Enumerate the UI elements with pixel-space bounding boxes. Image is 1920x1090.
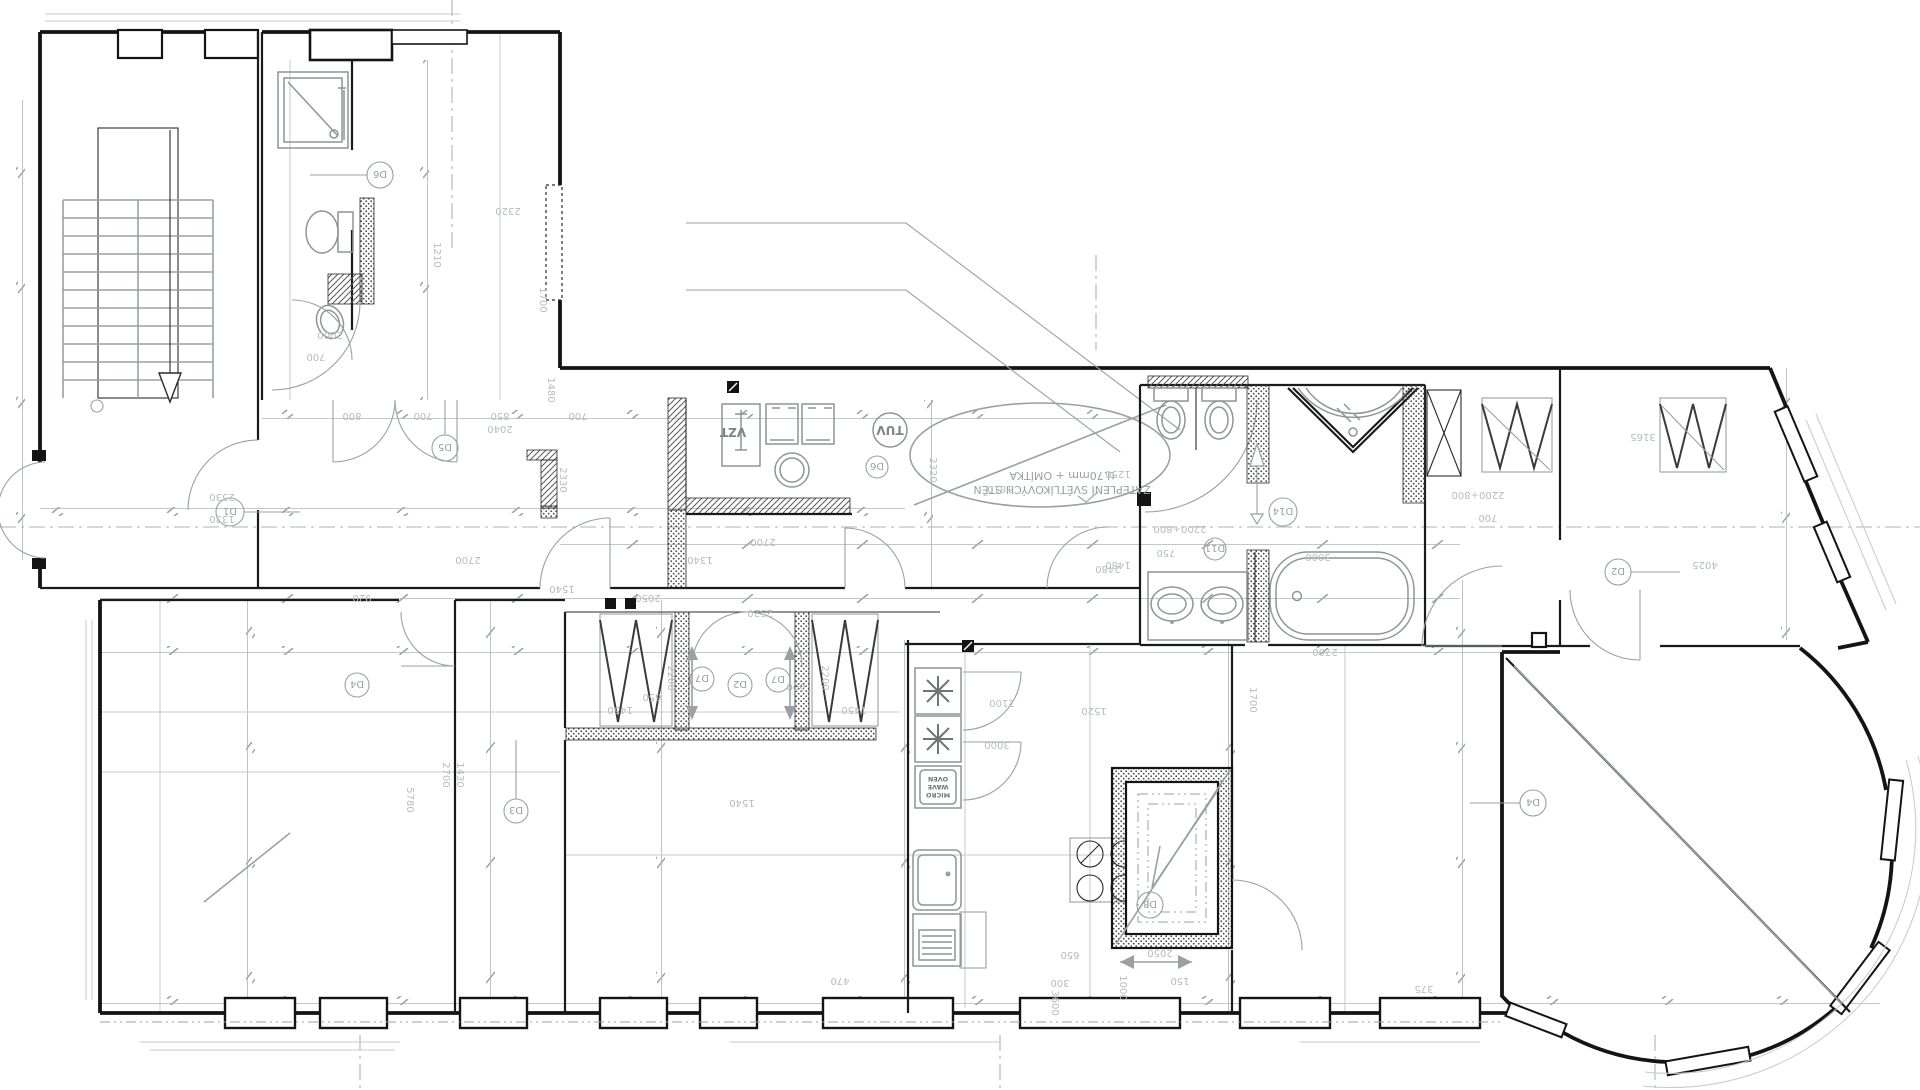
- door-tag: D5: [432, 400, 458, 461]
- svg-text:3000: 3000: [1305, 551, 1330, 562]
- svg-text:D7: D7: [695, 672, 709, 683]
- svg-text:850: 850: [490, 410, 509, 421]
- svg-text:1700: 1700: [537, 287, 548, 312]
- svg-text:D14: D14: [1273, 505, 1293, 516]
- vzt-label: VZT: [719, 425, 746, 439]
- door-arc: [1570, 590, 1640, 660]
- door-tag: D3: [504, 740, 528, 823]
- svg-text:2700: 2700: [455, 554, 480, 565]
- toilet-bowl: [306, 211, 338, 253]
- svg-text:1340: 1340: [687, 554, 712, 565]
- svg-text:1700: 1700: [1247, 687, 1258, 712]
- door-tag: D4: [345, 673, 369, 697]
- door-arc: [272, 302, 360, 390]
- door-arc: [540, 518, 610, 588]
- svg-text:750: 750: [1156, 547, 1175, 558]
- svg-text:1450: 1450: [607, 704, 632, 715]
- svg-text:2040: 2040: [487, 423, 512, 434]
- svg-text:2700: 2700: [1312, 646, 1337, 657]
- upper-room: [0, 400, 457, 558]
- door-tag: D6: [866, 456, 888, 478]
- closet-band: [566, 612, 878, 740]
- svg-text:2050: 2050: [1147, 947, 1172, 958]
- snowflake-icon: [923, 676, 953, 706]
- svg-text:2050: 2050: [635, 592, 660, 603]
- svg-text:700: 700: [1478, 512, 1497, 523]
- svg-text:3000: 3000: [984, 739, 1009, 750]
- kitchen-sink: [913, 850, 961, 910]
- svg-text:1810: 1810: [987, 483, 1012, 494]
- svg-text:4025: 4025: [1692, 559, 1717, 570]
- svg-text:700: 700: [568, 410, 587, 421]
- svg-text:2200: 2200: [665, 665, 676, 690]
- svg-text:1480: 1480: [545, 377, 556, 402]
- svg-text:D5: D5: [438, 441, 452, 452]
- door-tag: D6: [310, 162, 393, 188]
- door-tag: D7: [690, 667, 714, 691]
- svg-text:D3: D3: [509, 804, 523, 815]
- svg-text:D7: D7: [771, 673, 785, 684]
- svg-text:3600: 3600: [1049, 990, 1060, 1015]
- door-tag: D14: [1269, 498, 1297, 526]
- bottom-windows: [100, 998, 1500, 1050]
- stair-start-circle: [91, 400, 103, 412]
- door-arc: [401, 612, 455, 666]
- svg-text:650: 650: [642, 691, 661, 702]
- svg-text:1520: 1520: [1081, 705, 1106, 716]
- turret-room: [1502, 633, 1920, 1087]
- svg-text:2700: 2700: [750, 536, 775, 547]
- hatched-masonry-block: [328, 274, 362, 304]
- svg-text:920: 920: [352, 592, 371, 603]
- svg-text:150: 150: [1170, 975, 1189, 986]
- svg-text:D6: D6: [373, 168, 387, 179]
- door-tag: D2: [728, 673, 752, 697]
- outer-walls: [32, 30, 1920, 1087]
- svg-text:1250: 1250: [1105, 468, 1130, 479]
- snowflake-icon: [923, 724, 953, 754]
- tuv-label: TUV: [876, 423, 904, 437]
- annotation-line2: tl.70mm + OMÍTKA: [1009, 469, 1115, 482]
- svg-text:D2: D2: [1611, 565, 1625, 576]
- wardrobe: [1660, 398, 1726, 472]
- dimension-chain-lattice: [16, 14, 1880, 1013]
- door-arc: [845, 528, 905, 588]
- microwave-label-line3: OVEN: [928, 775, 948, 783]
- svg-text:D2: D2: [733, 678, 747, 689]
- door-arc: [1047, 527, 1108, 588]
- svg-text:1540: 1540: [729, 797, 754, 808]
- svg-text:600: 600: [786, 681, 805, 692]
- door-arc: [333, 400, 395, 462]
- svg-text:3165: 3165: [1630, 431, 1655, 442]
- door-tag: D7: [766, 668, 790, 692]
- svg-text:D8: D8: [1143, 898, 1157, 909]
- svg-text:2530: 2530: [209, 491, 234, 502]
- svg-text:1450: 1450: [841, 704, 866, 715]
- svg-text:2330: 2330: [557, 467, 568, 492]
- svg-text:D4: D4: [350, 678, 364, 689]
- microwave-label-line2: WAVE: [928, 783, 949, 791]
- floor-plan-drawing: MICRO WAVE OVEN: [0, 0, 1920, 1090]
- svg-text:2480: 2480: [1095, 563, 1120, 574]
- svg-text:375: 375: [1414, 983, 1433, 994]
- dimension-labels: 2530 1330 920 2700 1540 800 700 850 700 …: [209, 205, 1717, 1016]
- kitchen: MICRO WAVE OVEN: [913, 668, 1232, 969]
- svg-text:2000: 2000: [317, 329, 342, 340]
- door-tag: D2: [1605, 559, 1680, 585]
- svg-text:800: 800: [342, 410, 361, 421]
- svg-text:2520: 2520: [747, 607, 772, 618]
- svg-text:650: 650: [1060, 949, 1079, 960]
- svg-text:300: 300: [1050, 977, 1069, 988]
- svg-text:D4: D4: [1526, 796, 1540, 807]
- svg-text:700: 700: [306, 351, 325, 362]
- svg-text:2700: 2700: [440, 762, 451, 787]
- svg-text:1430: 1430: [454, 762, 465, 787]
- dishwasher: [913, 914, 961, 966]
- svg-text:470: 470: [830, 975, 849, 986]
- svg-text:2320: 2320: [495, 205, 520, 216]
- wardrobe: [1482, 398, 1552, 472]
- svg-text:700: 700: [413, 410, 432, 421]
- svg-text:1540: 1540: [549, 583, 574, 594]
- svg-text:1330: 1330: [209, 513, 234, 524]
- door-tag: D4: [1470, 790, 1546, 816]
- svg-text:2200: 2200: [819, 665, 830, 690]
- shower-tray-diagonal: [288, 82, 338, 136]
- microwave-label-line1: MICRO: [925, 791, 950, 799]
- svg-text:1210: 1210: [431, 242, 442, 267]
- svg-text:1000: 1000: [1117, 975, 1128, 1000]
- svg-text:5780: 5780: [404, 787, 415, 812]
- svg-text:D6: D6: [870, 460, 884, 471]
- door-arc: [1232, 880, 1302, 950]
- svg-text:2320: 2320: [927, 457, 938, 482]
- svg-text:2100: 2100: [989, 697, 1014, 708]
- right-wing-rooms: [1422, 368, 1726, 660]
- svg-text:2200+800: 2200+800: [1452, 489, 1505, 500]
- stairwell: [63, 128, 213, 412]
- svg-text:2200+800: 2200+800: [1154, 523, 1207, 534]
- svg-text:D11: D11: [1205, 542, 1225, 553]
